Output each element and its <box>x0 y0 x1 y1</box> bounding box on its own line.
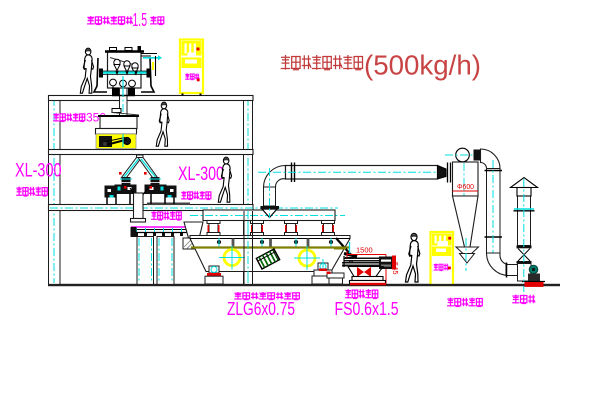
svg-text:ZLG6x0.75: ZLG6x0.75 <box>227 299 295 319</box>
svg-text:XL-300: XL-300 <box>178 164 224 185</box>
svg-text:FS0.6x1.5: FS0.6x1.5 <box>335 299 399 319</box>
svg-text:(500kg/h): (500kg/h) <box>364 50 481 81</box>
svg-text:1500: 1500 <box>356 246 373 255</box>
svg-text:1.5: 1.5 <box>133 10 148 30</box>
svg-text:Φ600: Φ600 <box>457 184 474 191</box>
svg-text:XL-300: XL-300 <box>15 161 62 182</box>
